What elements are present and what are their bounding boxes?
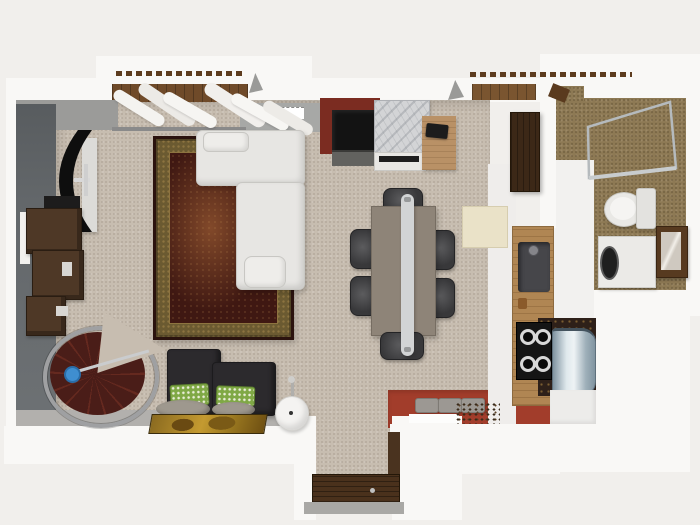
faucet xyxy=(528,245,539,256)
open-wood-door xyxy=(510,112,540,192)
shelf-books-2 xyxy=(56,306,68,316)
white-cabinet-lower xyxy=(550,390,596,424)
burner-1 xyxy=(520,329,536,345)
pedestal-center-dot xyxy=(289,411,293,415)
door-handle xyxy=(370,488,375,493)
bookshelf-unit-2 xyxy=(32,250,84,300)
sofa-back-cushion xyxy=(203,132,249,152)
floor-debris xyxy=(455,402,500,424)
refrigerator-base xyxy=(332,150,380,166)
washer-door xyxy=(600,246,619,280)
pendant-end-top xyxy=(404,197,411,202)
shelf-books xyxy=(62,262,72,276)
burner-2 xyxy=(535,329,551,345)
black-refrigerator xyxy=(332,110,380,154)
doorway-wood-floor xyxy=(472,84,536,100)
bookshelf-unit-3 xyxy=(26,296,66,336)
sofa-arm-cushion xyxy=(244,256,286,288)
mirror-glass xyxy=(661,232,681,270)
stainless-appliance xyxy=(552,328,596,396)
linear-pendant-light xyxy=(401,194,414,356)
burner-3 xyxy=(520,356,536,372)
white-floor-strip xyxy=(409,414,459,423)
pedestal-knob xyxy=(288,376,295,383)
floorplan-render xyxy=(0,0,700,525)
gold-painting xyxy=(148,414,268,434)
entry-hall-floor xyxy=(312,420,396,478)
glass-shower xyxy=(580,94,682,186)
burner-4 xyxy=(535,356,551,372)
bookshelf-unit-1 xyxy=(26,208,82,254)
toilet-tank xyxy=(636,188,656,229)
island-vent-slot xyxy=(379,156,419,162)
balcony-rail xyxy=(116,71,242,76)
spiral-stair-center-pole xyxy=(64,366,81,383)
entry-side-cabinet xyxy=(388,432,400,474)
laptop xyxy=(425,123,448,139)
pendant-end-bottom xyxy=(404,347,411,352)
cream-mat xyxy=(462,206,508,248)
toilet-seat xyxy=(610,197,636,220)
spice-jar xyxy=(518,298,527,309)
wall-bath-left xyxy=(540,98,556,228)
door-threshold xyxy=(304,502,404,514)
wall-kitchen-bottom xyxy=(390,424,560,474)
top-door-lintel xyxy=(470,72,632,77)
step-bench-1 xyxy=(415,398,439,413)
